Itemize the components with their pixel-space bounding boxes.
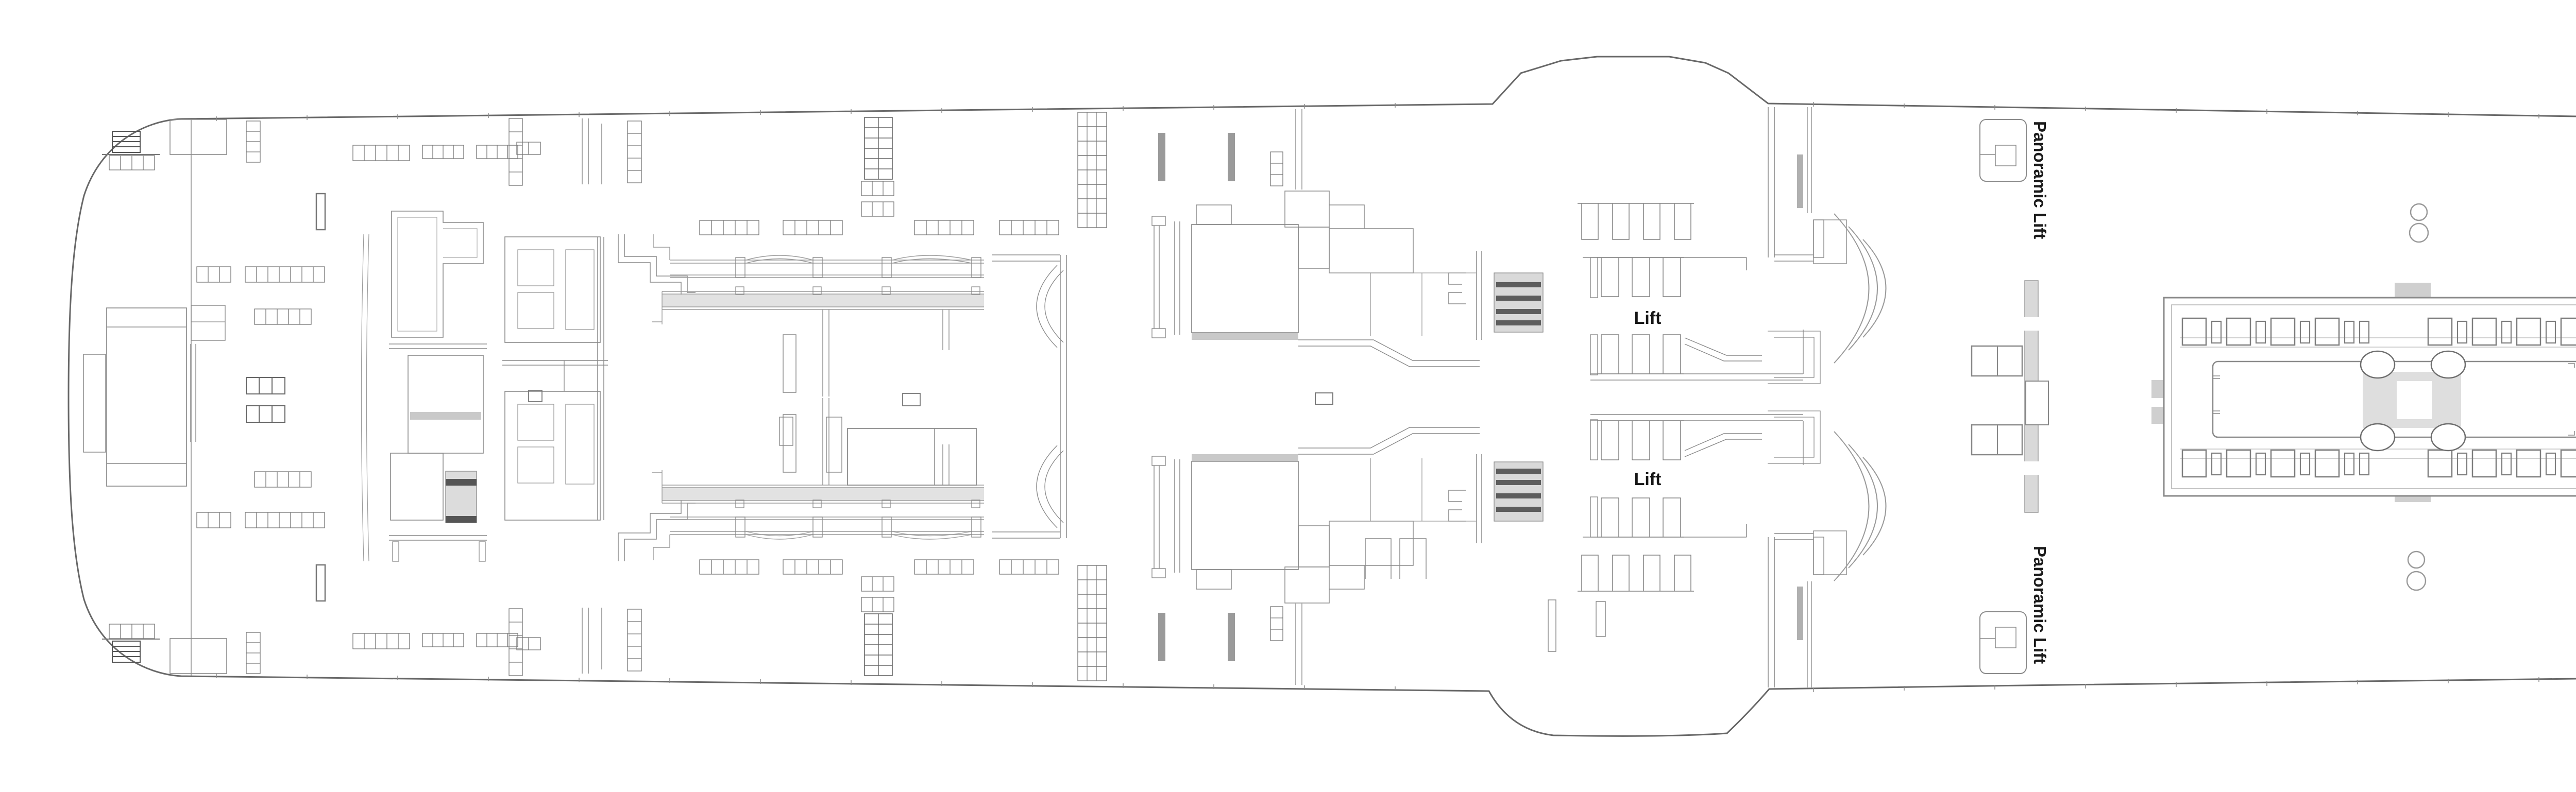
svg-text:Lift: Lift <box>1634 470 1662 489</box>
svg-text:Lift: Lift <box>1634 308 1662 328</box>
svg-text:Panoramic Lift: Panoramic Lift <box>2030 546 2049 664</box>
svg-text:Panoramic Lift: Panoramic Lift <box>2030 121 2049 239</box>
